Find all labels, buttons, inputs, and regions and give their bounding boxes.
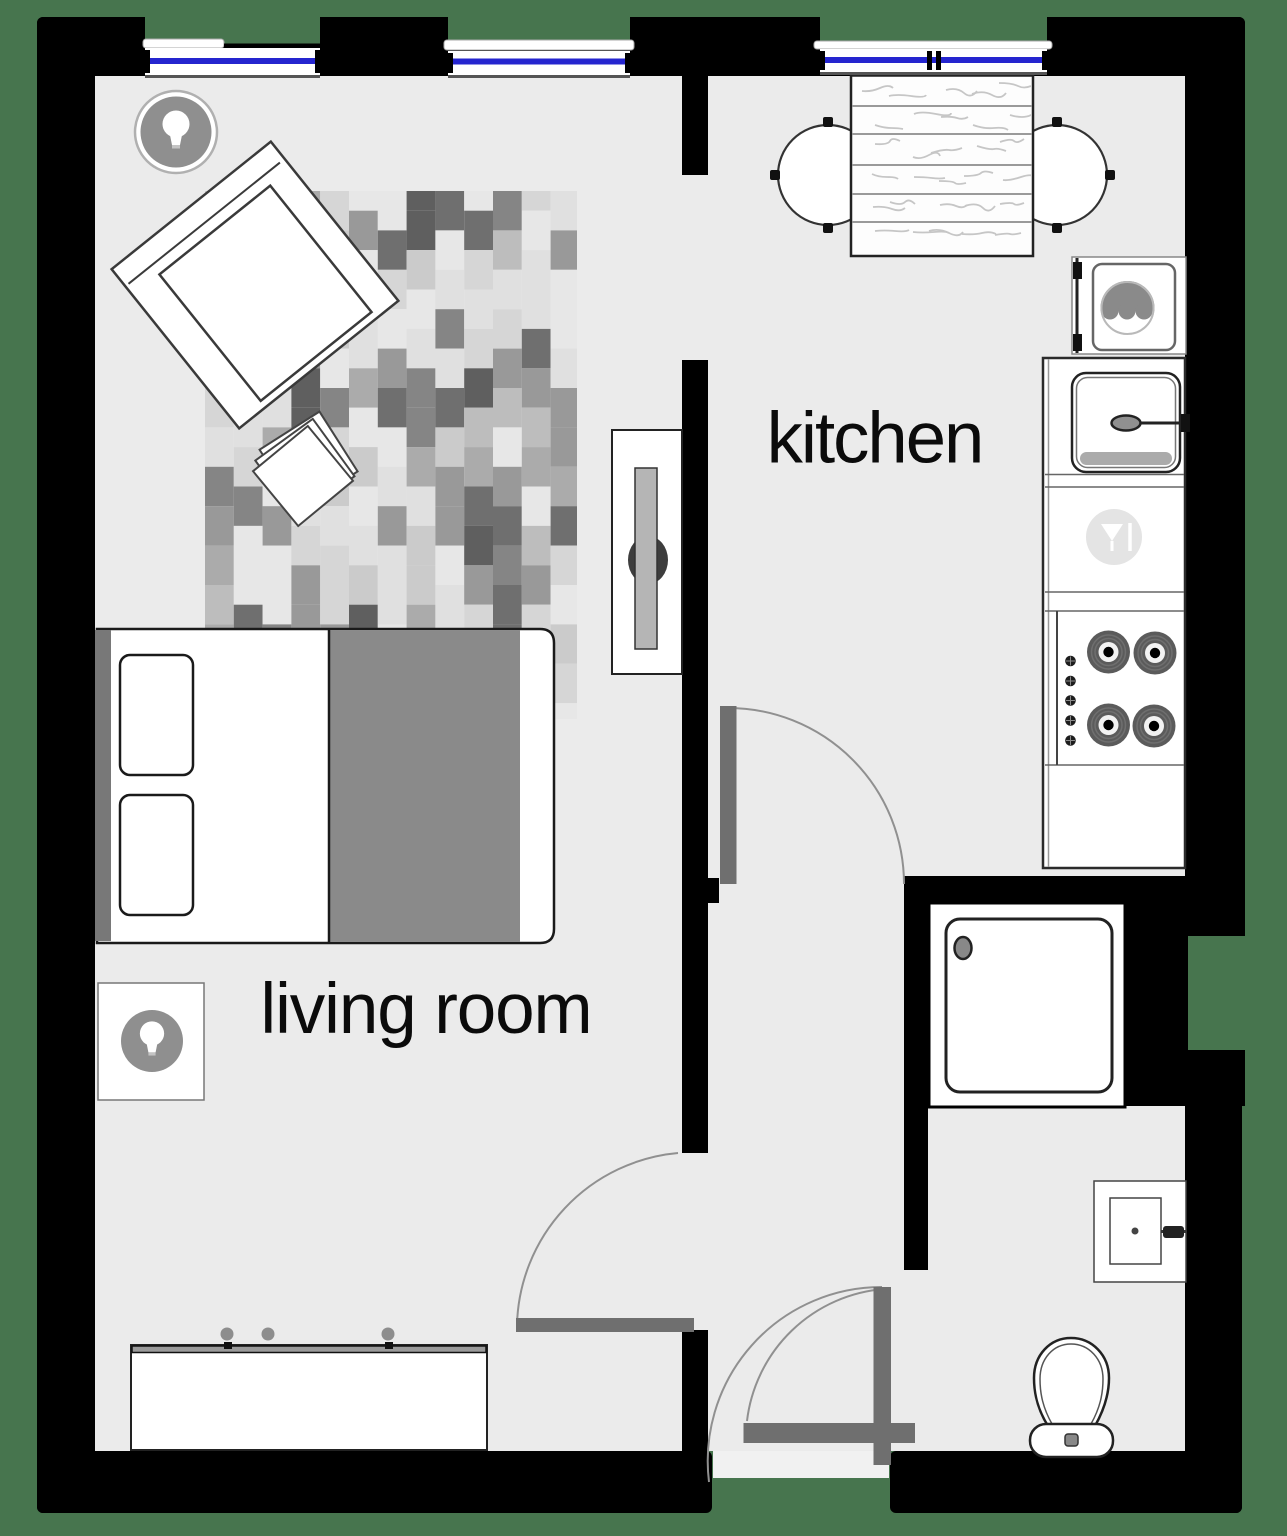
svg-text:kitchen: kitchen bbox=[767, 398, 983, 479]
svg-text:living room: living room bbox=[260, 970, 591, 1049]
